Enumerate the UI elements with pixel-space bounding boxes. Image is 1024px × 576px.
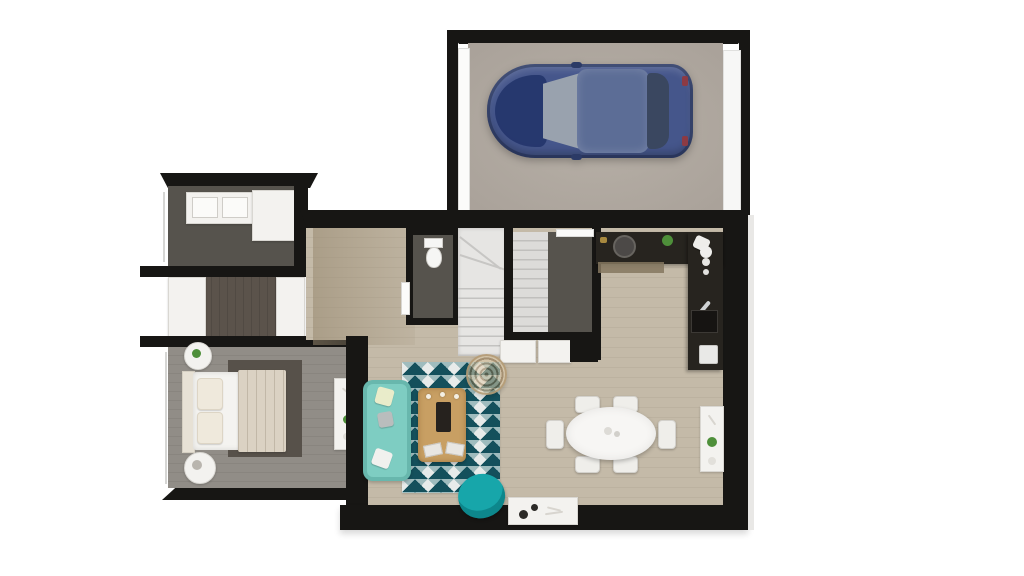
- coffee-table: [418, 388, 466, 462]
- teal-sofa: [363, 380, 411, 481]
- kitchen-sink: [691, 310, 718, 333]
- nightstand-decor: [192, 460, 202, 470]
- table-centerpiece: [614, 431, 620, 437]
- living-right-wall: [723, 210, 748, 530]
- car-roof: [577, 69, 649, 153]
- tv-console: [508, 497, 578, 525]
- dining-chair: [546, 420, 564, 449]
- garage-side-door: [458, 48, 470, 214]
- sideboard-decor-branch: [708, 415, 717, 426]
- kitchen-cabinet-face: [598, 262, 664, 273]
- car-windshield: [543, 71, 579, 151]
- candle: [454, 394, 459, 399]
- closet-right: [276, 277, 305, 339]
- garage-left-wall: [447, 30, 458, 220]
- sofa-pillow: [374, 386, 395, 407]
- console-decor-bowl: [519, 510, 528, 519]
- magazine: [423, 442, 443, 457]
- kitchen-plant: [662, 235, 673, 246]
- candle: [440, 392, 445, 397]
- sideboard-plant: [707, 437, 717, 447]
- staircase: [458, 228, 506, 356]
- bed-pillow: [197, 378, 223, 410]
- dressing-floor: [204, 277, 278, 337]
- sideboard-decor: [708, 457, 716, 465]
- living-top-wall: [300, 210, 750, 228]
- dining-table: [566, 407, 656, 460]
- car-mirror-left: [571, 62, 582, 68]
- shower: [252, 190, 296, 241]
- exterior-shadow: [748, 215, 754, 530]
- sink-left: [192, 197, 218, 218]
- toilet-bowl: [426, 247, 442, 268]
- wall-corner-block: [570, 338, 598, 362]
- kitchen-hob: [613, 235, 636, 258]
- utility-door: [556, 229, 594, 237]
- window-left-bathroom: [163, 192, 165, 262]
- stair-treads: [458, 280, 506, 356]
- table-centerpiece: [604, 427, 612, 435]
- dining-sideboard: [700, 406, 724, 472]
- bathroom-vanity: [186, 192, 256, 224]
- garage-entry-door: [723, 50, 741, 214]
- bed-blanket: [238, 370, 286, 452]
- floor-plan-render: [0, 0, 1024, 576]
- winder-step-line: [460, 236, 502, 269]
- car-taillight: [682, 76, 688, 86]
- kitchen-faucet-brass: [600, 237, 607, 243]
- window-left-bedroom: [165, 352, 167, 484]
- coffee-table-tray: [436, 402, 451, 432]
- car-mirror-right: [571, 154, 582, 160]
- utility-room-floor: [548, 232, 592, 332]
- stair-flight-second: [513, 232, 548, 332]
- kitchen-appliance: [699, 345, 718, 364]
- sofa-pillow: [371, 447, 394, 469]
- nightstand-plant: [192, 349, 201, 358]
- dining-chair: [658, 420, 676, 449]
- sink-right: [222, 197, 248, 218]
- console-decor-bowl: [531, 504, 538, 511]
- hall-cabinet: [500, 340, 536, 363]
- candle: [426, 394, 431, 399]
- entry-floor: [313, 228, 415, 345]
- car-rear-glass: [647, 73, 669, 149]
- garage-top-wall: [447, 30, 750, 44]
- kitchen-dishes: [700, 246, 712, 258]
- bed-pillow: [197, 412, 223, 444]
- rattan-pendant-light: [466, 354, 507, 395]
- bathroom-bottom-wall: [140, 266, 306, 277]
- hall-cabinet: [538, 340, 571, 363]
- magazine: [445, 442, 465, 457]
- wc-door: [401, 282, 410, 315]
- car-top-view: [487, 64, 693, 158]
- sofa-pillow: [377, 411, 394, 428]
- bedroom-bottom-wall: [162, 488, 350, 500]
- car-taillight: [682, 136, 688, 146]
- closet-left: [168, 277, 206, 339]
